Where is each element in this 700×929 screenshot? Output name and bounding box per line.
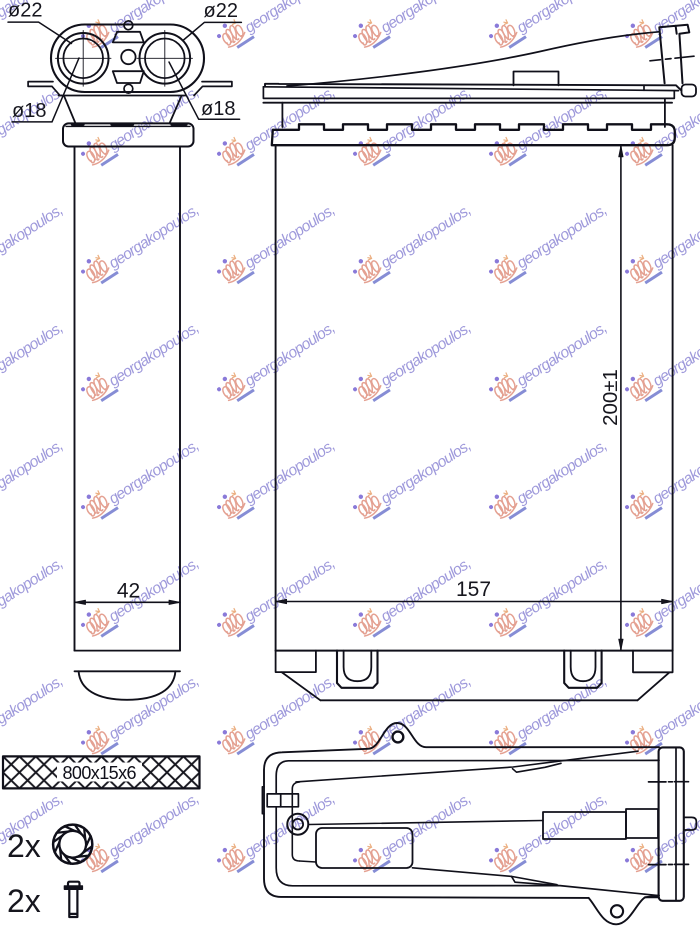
svg-text:157: 157 bbox=[456, 578, 491, 601]
svg-text:ø22: ø22 bbox=[204, 0, 238, 22]
svg-text:200±1: 200±1 bbox=[599, 369, 622, 426]
svg-text:800x15x6: 800x15x6 bbox=[63, 763, 137, 783]
svg-text:ø18: ø18 bbox=[201, 98, 235, 120]
svg-text:ø18: ø18 bbox=[12, 100, 46, 122]
svg-text:42: 42 bbox=[117, 580, 140, 603]
svg-text:2x: 2x bbox=[7, 883, 41, 919]
svg-text:2x: 2x bbox=[7, 828, 41, 864]
svg-text:ø22: ø22 bbox=[8, 0, 42, 22]
